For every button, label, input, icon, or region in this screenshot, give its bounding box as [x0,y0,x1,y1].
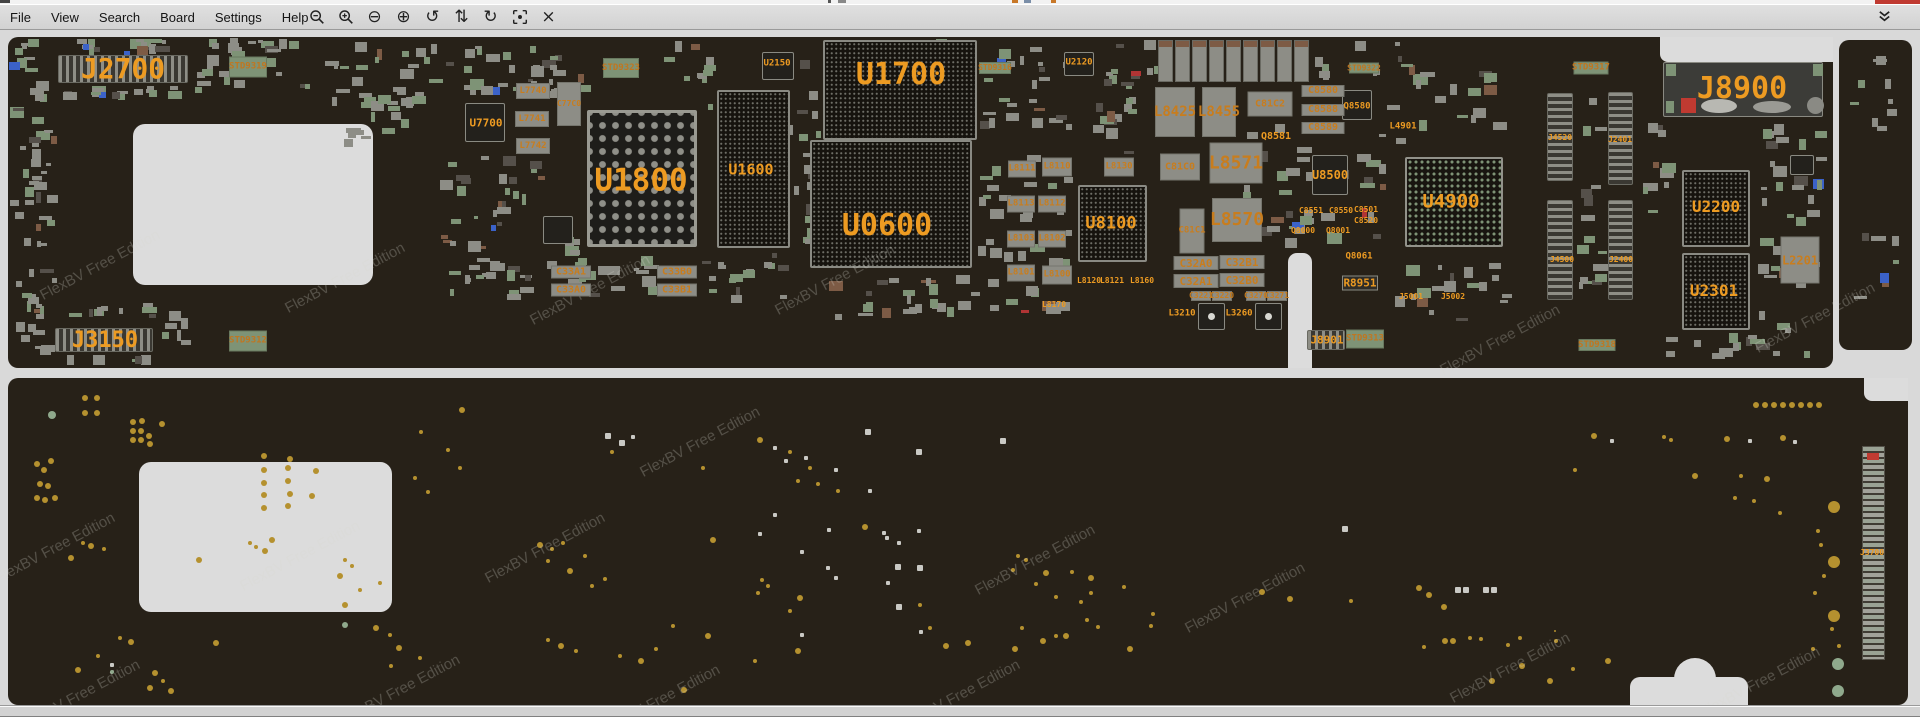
component[interactable] [1007,103,1017,108]
component[interactable] [1360,183,1374,188]
component[interactable] [550,65,557,70]
component[interactable] [346,128,360,133]
label-STD9312[interactable]: STD9312 [229,331,267,352]
component[interactable] [431,44,437,54]
component[interactable] [509,177,518,184]
component[interactable] [1158,40,1173,82]
chip[interactable] [543,216,573,244]
component[interactable] [530,46,537,52]
label-U7700[interactable]: U7700 [469,118,502,129]
component[interactable] [1419,120,1427,131]
component[interactable] [509,65,516,74]
label-C8551[interactable]: C8551 [1299,207,1323,215]
label-L8425[interactable]: L8425 [1155,87,1195,137]
component[interactable] [1104,79,1112,86]
increase-button[interactable]: ⊕ [389,4,418,29]
component[interactable] [1243,40,1258,82]
component[interactable] [1294,40,1309,82]
component[interactable] [1124,151,1135,154]
component[interactable] [1792,185,1805,190]
component[interactable] [1096,103,1103,112]
component[interactable] [990,305,998,311]
component[interactable] [202,69,213,77]
menu-file[interactable]: File [0,5,41,29]
component[interactable] [987,185,999,191]
component[interactable] [1804,351,1810,359]
component[interactable] [378,95,391,104]
label-L8120[interactable]: L8120 [1077,277,1101,285]
label-J5001[interactable]: J5001 [1399,293,1423,301]
component[interactable] [1763,129,1773,140]
component[interactable] [169,311,181,321]
component[interactable] [530,161,543,169]
component[interactable] [863,304,872,312]
label-Q8001[interactable]: Q8001 [1326,227,1350,235]
component[interactable] [181,318,189,329]
label-C3221[interactable]: C3221 [1191,291,1211,301]
label-J2700[interactable]: J2700 [81,55,165,83]
component[interactable] [1457,115,1468,118]
component[interactable] [500,263,505,271]
label-STD9319[interactable]: STD9319 [229,57,267,78]
component[interactable] [1056,115,1067,121]
component[interactable] [1664,182,1669,188]
component[interactable] [992,166,1001,176]
component[interactable] [10,200,19,206]
component[interactable] [34,309,40,312]
component[interactable] [1662,163,1676,173]
component[interactable] [1773,351,1779,356]
component[interactable] [1666,337,1678,342]
component[interactable] [486,54,500,62]
component[interactable] [481,86,493,95]
label-Q8580[interactable]: Q8580 [1343,103,1370,112]
component[interactable] [1591,185,1601,189]
component[interactable] [1484,73,1497,82]
component[interactable] [336,89,350,93]
component[interactable] [1648,123,1657,133]
label-STD9316[interactable]: STD9316 [979,62,1011,74]
component[interactable] [149,90,157,97]
chip[interactable] [1198,303,1225,330]
component[interactable] [35,297,39,305]
component[interactable] [170,86,178,90]
component[interactable] [224,77,230,86]
label-L7741[interactable]: L7741 [515,111,549,127]
component[interactable] [800,60,810,69]
component[interactable] [971,292,980,296]
component[interactable] [486,272,497,279]
component[interactable] [397,87,406,94]
component[interactable] [1464,267,1473,278]
label-L8160[interactable]: L8160 [1130,277,1154,285]
component[interactable] [51,136,57,144]
component[interactable] [731,295,742,303]
component[interactable] [505,188,510,195]
component[interactable] [1871,236,1886,241]
label-R8951[interactable]: R8951 [1342,276,1378,291]
component[interactable] [691,44,700,50]
component[interactable] [1589,98,1597,105]
component[interactable] [984,78,992,81]
zoom-in-button[interactable] [331,4,360,29]
component[interactable] [983,195,991,200]
component[interactable] [36,132,45,137]
component[interactable] [477,258,490,262]
component[interactable] [930,299,938,308]
component[interactable] [915,304,922,313]
component[interactable] [1733,343,1739,352]
label-J3700[interactable]: J3700 [1860,549,1884,557]
label-Q8061[interactable]: Q8061 [1345,253,1372,262]
component[interactable] [412,96,426,104]
component[interactable] [89,309,93,317]
component[interactable] [37,241,41,248]
component[interactable] [16,281,21,287]
component[interactable] [858,313,873,316]
component[interactable] [1774,124,1784,135]
component[interactable] [1880,273,1889,283]
component[interactable] [162,332,169,340]
component[interactable] [267,49,281,52]
component[interactable] [474,216,478,219]
label-J3150[interactable]: J3150 [72,330,138,352]
connector-J4500[interactable] [1547,200,1573,300]
close-button[interactable]: × [534,4,563,29]
component[interactable] [1144,40,1155,50]
label-U0600[interactable]: U0600 [842,211,932,241]
label-U8100[interactable]: U8100 [1085,216,1136,233]
component[interactable] [1885,79,1892,89]
label-J4500[interactable]: J4500 [1550,256,1574,264]
component[interactable] [538,176,545,180]
label-Q8000[interactable]: Q8000 [1291,227,1315,235]
component[interactable] [97,307,101,317]
component[interactable] [195,87,203,93]
component[interactable] [1500,300,1508,303]
component[interactable] [1006,113,1018,121]
component[interactable] [36,192,41,203]
label-L7740[interactable]: L7740 [516,83,550,99]
component[interactable] [41,171,46,175]
component[interactable] [999,49,1011,59]
component[interactable] [764,262,771,268]
component[interactable] [1850,102,1859,105]
component[interactable] [1406,265,1420,275]
component[interactable] [1796,217,1806,226]
component[interactable] [1107,111,1115,121]
label-L8100[interactable]: L8100 [1042,266,1072,285]
component[interactable] [25,68,38,72]
component[interactable] [1807,210,1821,218]
component[interactable] [32,176,42,180]
component[interactable] [1396,138,1406,144]
label-C32A1[interactable]: C32A1 [1174,274,1219,288]
component[interactable] [1760,238,1774,247]
component[interactable] [168,91,182,99]
component[interactable] [1373,234,1381,238]
component[interactable] [1039,67,1045,73]
component[interactable] [1175,40,1190,82]
component[interactable] [1492,275,1499,281]
component[interactable] [15,212,24,219]
component[interactable] [16,326,22,332]
component[interactable] [1456,318,1467,321]
component[interactable] [142,307,157,313]
component[interactable] [816,131,822,138]
component[interactable] [97,355,103,365]
component[interactable] [1380,184,1386,189]
component[interactable] [28,324,35,331]
label-L7742[interactable]: L7742 [516,138,550,154]
component[interactable] [1271,217,1284,222]
component[interactable] [1066,124,1072,130]
component[interactable] [718,265,726,269]
label-C8588[interactable]: C8588 [1302,104,1345,116]
component[interactable] [352,77,363,86]
component[interactable] [465,275,471,285]
component[interactable] [1116,44,1123,49]
component[interactable] [1260,40,1275,82]
label-C33B0[interactable]: C33B0 [657,266,697,279]
component[interactable] [835,314,842,320]
component[interactable] [1595,274,1607,282]
label-U1700[interactable]: U1700 [856,60,946,90]
component[interactable] [1761,187,1767,190]
component[interactable] [503,52,511,60]
component[interactable] [1319,71,1329,79]
component[interactable] [468,241,481,252]
component[interactable] [1066,230,1072,235]
component[interactable] [1401,64,1413,67]
component[interactable] [149,314,156,317]
component[interactable] [1034,108,1045,111]
component[interactable] [1024,182,1037,187]
component[interactable] [1816,157,1826,160]
component[interactable] [46,163,50,167]
component[interactable] [1131,71,1141,76]
component[interactable] [1209,40,1224,82]
component[interactable] [497,207,510,214]
component[interactable] [475,46,481,50]
component[interactable] [882,308,891,318]
component[interactable] [1032,80,1037,89]
component[interactable] [1467,283,1479,289]
component[interactable] [684,76,689,81]
component[interactable] [1493,122,1506,130]
label-J2400[interactable]: J2400 [1609,256,1633,264]
label-L4901[interactable]: L4901 [1389,123,1416,132]
label-L2201[interactable]: L2201 [1781,237,1820,284]
zoom-out-button[interactable] [302,4,331,29]
component[interactable] [1247,132,1258,140]
label-C81C0[interactable]: C81C0 [1160,154,1200,181]
component[interactable] [165,323,176,329]
component[interactable] [1658,130,1666,137]
component[interactable] [1648,210,1659,213]
label-C8520[interactable]: C8520 [1354,217,1378,225]
component[interactable] [36,304,42,307]
component[interactable] [1450,84,1457,95]
label-U8500[interactable]: U8500 [1312,169,1348,181]
component[interactable] [1583,126,1591,136]
label-C8580[interactable]: C8580 [1302,85,1345,97]
component[interactable] [9,62,20,70]
component[interactable] [371,112,376,122]
component[interactable] [490,261,499,271]
component[interactable] [1420,72,1435,76]
component[interactable] [1429,310,1434,315]
component[interactable] [1300,216,1312,225]
component[interactable] [424,57,430,64]
component[interactable] [1776,137,1790,143]
component[interactable] [340,66,349,69]
component[interactable] [675,41,683,52]
label-L8110[interactable]: L8110 [1042,158,1072,177]
component[interactable] [481,156,488,160]
component[interactable] [986,239,994,245]
component[interactable] [356,65,368,70]
component[interactable] [464,66,472,73]
component[interactable] [1468,88,1481,96]
label-STD9318[interactable]: STD9318 [1579,339,1616,351]
component[interactable] [703,70,712,76]
component[interactable] [799,134,808,141]
component[interactable] [1064,177,1073,183]
component[interactable] [1598,251,1608,254]
menu-board[interactable]: Board [150,5,205,29]
component[interactable] [1888,99,1893,103]
component[interactable] [708,104,713,110]
component[interactable] [1147,68,1153,75]
label-Q8581[interactable]: Q8581 [1261,132,1291,142]
component[interactable] [1357,154,1369,161]
component[interactable] [1244,185,1250,192]
component[interactable] [119,308,123,314]
component[interactable] [772,253,777,258]
component[interactable] [212,43,218,48]
label-C81C2[interactable]: C81C2 [1248,92,1293,117]
component[interactable] [889,278,899,283]
component[interactable] [1877,126,1887,131]
component[interactable] [1762,198,1767,206]
component[interactable] [1887,109,1898,116]
component[interactable] [947,307,954,318]
component[interactable] [493,210,497,218]
component[interactable] [28,39,39,47]
component[interactable] [22,293,32,299]
label-L3210[interactable]: L3210 [1168,310,1195,319]
component[interactable] [41,345,55,352]
component[interactable] [709,276,716,281]
menu-settings[interactable]: Settings [205,5,272,29]
component[interactable] [507,270,516,281]
component[interactable] [401,119,409,128]
label-C3270[interactable]: C3270 [1246,291,1266,301]
component[interactable] [25,200,34,205]
component[interactable] [83,44,89,50]
component[interactable] [24,238,32,246]
component[interactable] [69,313,82,317]
label-L8101[interactable]: L8101 [1007,265,1035,282]
component[interactable] [1226,40,1241,82]
component[interactable] [47,195,58,203]
component[interactable] [499,174,507,184]
label-J4520[interactable]: J4520 [1548,134,1572,142]
component[interactable] [1758,264,1769,274]
component[interactable] [450,289,454,295]
label-C32B1[interactable]: C32B1 [1220,255,1265,269]
component[interactable] [1666,351,1675,356]
component[interactable] [1435,96,1447,103]
component[interactable] [1126,98,1133,104]
component[interactable] [440,180,452,190]
component[interactable] [1764,275,1777,278]
label-U2301[interactable]: U2301 [1690,283,1738,299]
component[interactable] [778,265,789,271]
menu-view[interactable]: View [41,5,89,29]
component[interactable] [476,275,485,280]
component[interactable] [937,303,946,312]
component[interactable] [63,92,77,99]
component[interactable] [1808,195,1814,204]
chip[interactable] [1790,155,1814,175]
component[interactable] [1438,265,1442,270]
component[interactable] [305,84,311,89]
component[interactable] [999,98,1010,103]
component[interactable] [702,261,710,264]
component[interactable] [1873,59,1886,62]
component[interactable] [1277,40,1292,82]
component[interactable] [1815,131,1827,139]
component[interactable] [1595,127,1606,131]
component[interactable] [550,56,558,61]
component[interactable] [1694,340,1701,347]
component[interactable] [1285,238,1297,247]
component[interactable] [13,108,24,111]
component[interactable] [448,162,457,167]
component[interactable] [809,91,818,99]
component[interactable] [1773,166,1787,177]
label-C8501[interactable]: C8501 [1354,206,1378,214]
label-C33A0[interactable]: C33A0 [551,284,591,297]
component[interactable] [1297,147,1312,152]
component[interactable] [446,62,454,66]
component[interactable] [30,88,38,94]
component[interactable] [1004,252,1013,262]
component[interactable] [958,301,972,310]
component[interactable] [1872,118,1878,128]
label-C3220[interactable]: C3220 [1212,291,1232,301]
component[interactable] [553,70,565,76]
component[interactable] [1279,190,1292,195]
rotate-ccw-button[interactable]: ↺ [418,4,447,29]
component[interactable] [258,40,263,43]
component[interactable] [503,156,516,165]
component[interactable] [1106,128,1117,139]
component[interactable] [929,284,938,295]
component[interactable] [1315,57,1323,67]
label-C33A1[interactable]: C33A1 [551,266,591,279]
component[interactable] [988,279,999,287]
label-C33B1[interactable]: C33B1 [657,284,697,297]
component[interactable] [391,112,401,120]
label-C32A0[interactable]: C32A0 [1174,256,1219,270]
component[interactable] [32,117,43,124]
component[interactable] [1577,245,1589,255]
component[interactable] [1192,40,1207,82]
component[interactable] [1387,105,1401,110]
